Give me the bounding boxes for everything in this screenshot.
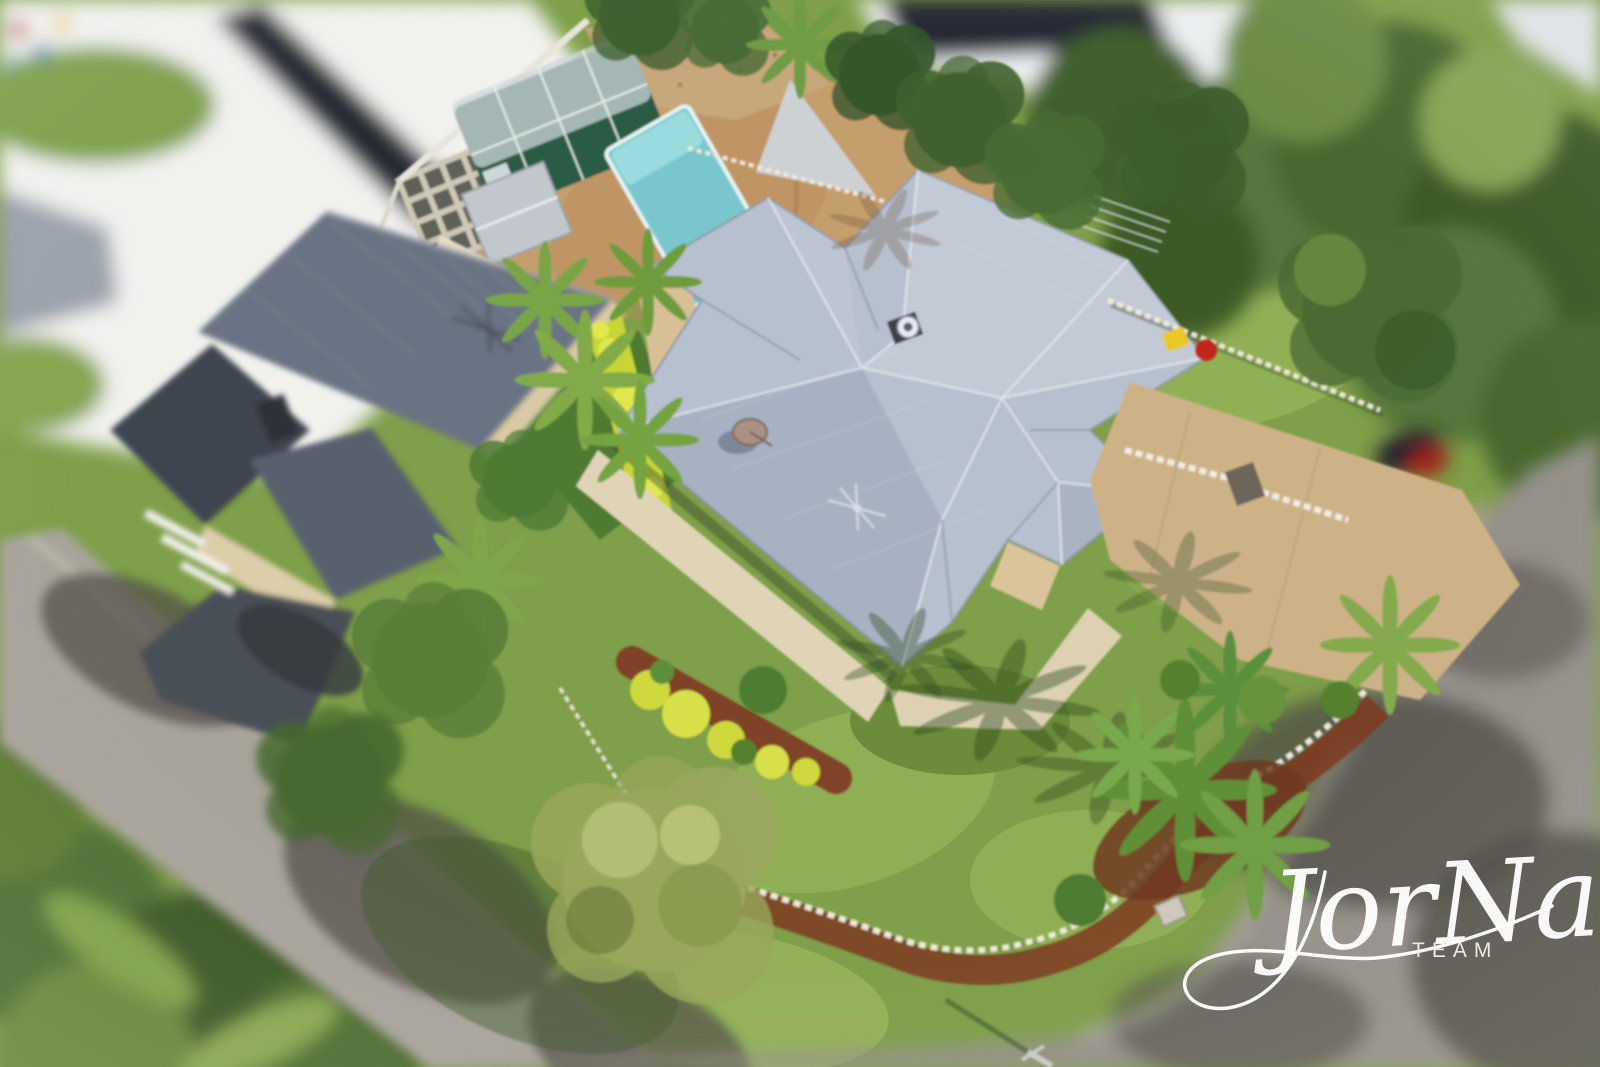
watermark-subtitle: TEAM: [1412, 939, 1498, 962]
aerial-photo: JorNat TEAM: [0, 0, 1600, 1067]
photo-canvas: JorNat TEAM: [0, 0, 1600, 1067]
